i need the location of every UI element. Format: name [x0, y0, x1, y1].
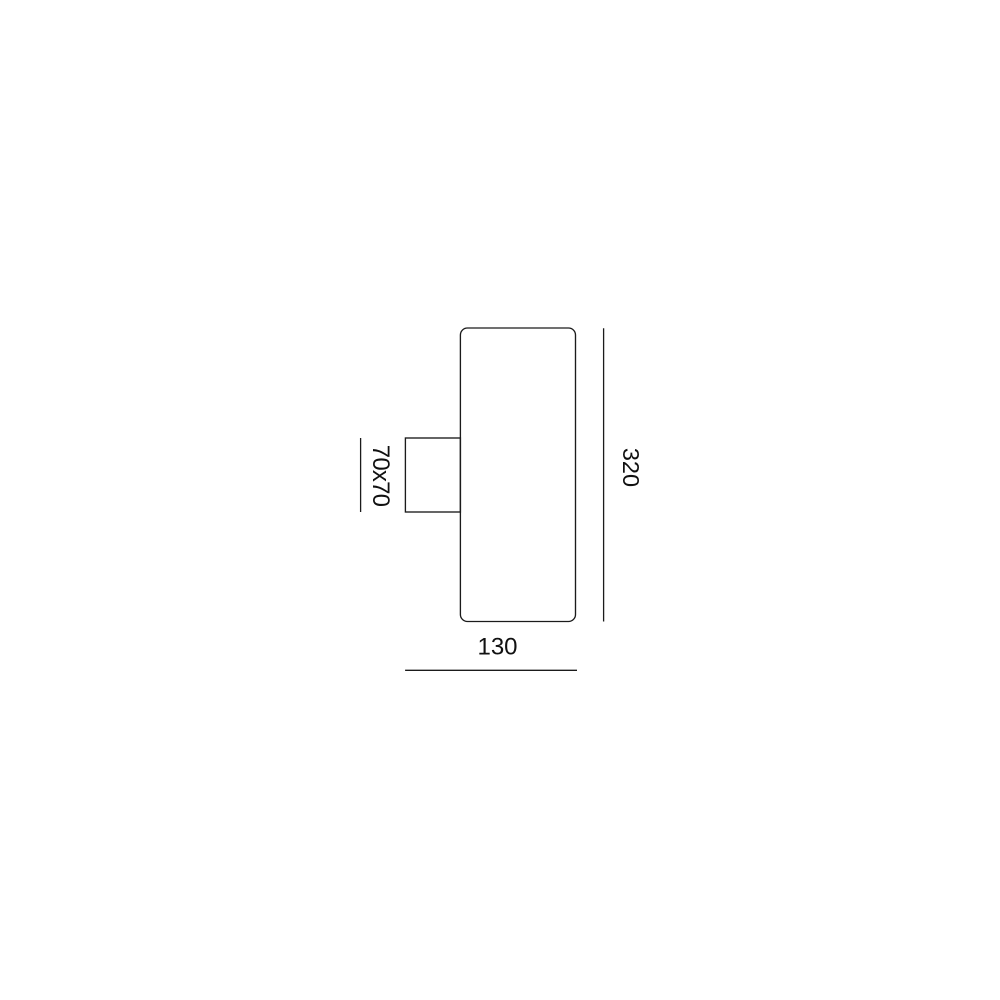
- svg-text:320: 320: [618, 448, 644, 487]
- svg-text:130: 130: [477, 634, 517, 661]
- svg-text:70x70: 70x70: [367, 445, 394, 507]
